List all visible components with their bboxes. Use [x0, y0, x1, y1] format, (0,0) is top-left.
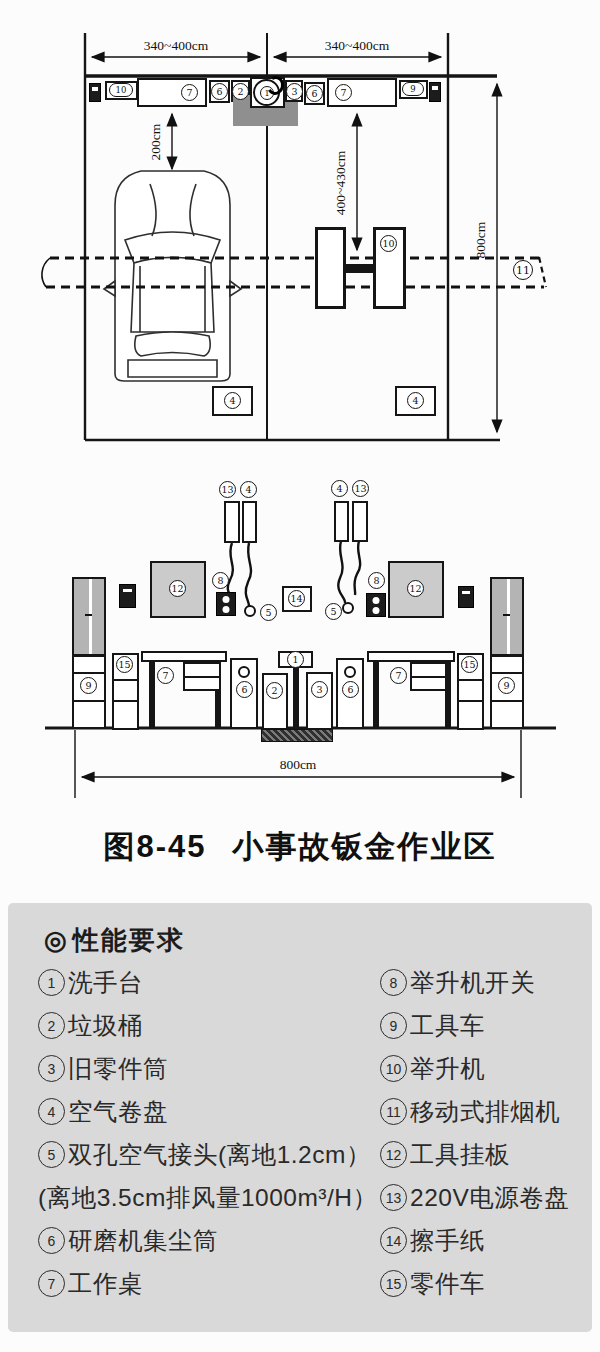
- callout-hang-4-left: 4: [240, 481, 257, 498]
- table-top-right: [367, 651, 455, 662]
- dust-collector-inlet: [238, 666, 250, 678]
- callout-hang-4-right: 4: [331, 480, 348, 497]
- table-shelf-left: [183, 662, 221, 691]
- item-text: 空气卷盘: [68, 1095, 168, 1128]
- panel-slot: [432, 86, 438, 90]
- callout-switch-8-left: 8: [212, 572, 229, 589]
- legend-heading-text: 性能要求: [73, 923, 185, 958]
- item-text: 工具挂板: [410, 1138, 510, 1171]
- callout-coupler-5-left: 5: [260, 604, 277, 621]
- legend-item-9: 9工具车: [380, 1009, 485, 1042]
- plan-linework: 340~400cm 340~400cm 800cm 200cm 400~430c…: [0, 0, 600, 470]
- wall-box-left: [119, 584, 136, 608]
- item-number: 1: [38, 969, 65, 996]
- table-shelf-right: [410, 662, 447, 691]
- item-number: 10: [380, 1055, 407, 1082]
- cart-shelf-line: [492, 672, 522, 674]
- power-reel-left: [224, 501, 240, 543]
- tall-cabinet-right: [490, 577, 524, 656]
- callout-floor-3: 3: [311, 681, 328, 698]
- item-number: 11: [380, 1098, 407, 1125]
- callout-wall-6-left: 6: [211, 83, 228, 100]
- cart-shelf-line: [114, 700, 137, 702]
- legend-item-10: 10举升机: [380, 1052, 485, 1085]
- item-text: 220V电源卷盘: [410, 1181, 569, 1214]
- callout-towel-14: 14: [288, 590, 305, 607]
- callout-board-12-left: 12: [169, 580, 186, 597]
- cart-shelf-line: [459, 679, 482, 681]
- car-top-view: [104, 171, 241, 381]
- callout-wall-10: 10: [109, 83, 133, 97]
- callout-floor-6-left: 6: [236, 681, 253, 698]
- callout-coupler-5-right: 5: [325, 603, 342, 620]
- item-number: 9: [380, 1012, 407, 1039]
- power-reel-right: [352, 501, 368, 542]
- legend-item-3: 3旧零件筒: [38, 1052, 168, 1085]
- cabinet-handle: [503, 614, 510, 617]
- item-number: 6: [38, 1227, 65, 1254]
- switch-button: [223, 596, 230, 603]
- panel-slot: [123, 589, 131, 593]
- wall-panel-left: [89, 83, 101, 102]
- legend-item-2: 2垃圾桶: [38, 1009, 143, 1042]
- item-text: 双孔空气接头(离地1.2cm）: [68, 1138, 371, 1171]
- callout-floor-7-right: 7: [390, 667, 407, 684]
- dim-depth: 800cm: [473, 221, 488, 258]
- callout-hang-13-right: 13: [352, 480, 369, 497]
- callout-wall-6-right: 6: [306, 85, 323, 102]
- item-number: 3: [38, 1055, 65, 1082]
- legend-item-11: 11移动式排烟机: [380, 1095, 560, 1128]
- lift-switch-right: [366, 593, 386, 617]
- figure-page: 340~400cm 340~400cm 800cm 200cm 400~430c…: [0, 0, 600, 1352]
- callout-wall-9: 9: [402, 82, 424, 96]
- cart-shelf-line: [492, 700, 522, 702]
- legend-item-8: 8举升机开关: [380, 966, 535, 999]
- callout-floor-1: 1: [287, 651, 304, 668]
- legend-heading: ◎ 性能要求: [44, 923, 185, 958]
- table-leg: [149, 662, 155, 728]
- item-text: 移动式排烟机: [410, 1095, 560, 1128]
- dim-bay-right: 340~400cm: [325, 38, 390, 53]
- cabinet-handle: [85, 614, 92, 617]
- item-text: (离地3.5cm排风量1000m³/H）: [38, 1181, 377, 1214]
- legend-item-15: 15零件车: [380, 1267, 485, 1300]
- callout-wall-7-right: 7: [335, 84, 352, 101]
- item-number: 8: [380, 969, 407, 996]
- callout-wall-7-left: 7: [181, 84, 198, 101]
- legend-item-13: 13220V电源卷盘: [380, 1181, 569, 1214]
- table-leg: [373, 662, 379, 728]
- item-text: 研磨机集尘筒: [68, 1224, 218, 1257]
- callout-floor-6-right: 6: [342, 681, 359, 698]
- item-text: 工具车: [410, 1009, 485, 1042]
- callout-board-12-right: 12: [407, 580, 424, 597]
- item-number: 15: [380, 1270, 407, 1297]
- callout-air-reel-right: 4: [407, 392, 424, 409]
- elevation-view: 800cm 9 15 7 6 2: [0, 470, 600, 810]
- switch-button: [373, 597, 380, 604]
- item-number: 4: [38, 1098, 65, 1125]
- basin-base-plate: [261, 729, 333, 742]
- legend-item-5b: (离地3.5cm排风量1000m³/H）: [38, 1181, 377, 1214]
- item-text: 工作桌: [68, 1267, 143, 1300]
- air-reel-hang-left: [242, 501, 257, 543]
- callout-switch-8-right: 8: [368, 572, 385, 589]
- callout-floor-15-left: 15: [116, 656, 133, 673]
- item-text: 洗手台: [68, 966, 143, 999]
- callout-air-reel-left: 4: [224, 392, 241, 409]
- item-number: 13: [380, 1184, 407, 1211]
- table-top-left: [141, 651, 227, 662]
- cabinet-door-gap: [507, 579, 510, 654]
- callout-floor-9-right: 9: [498, 677, 515, 694]
- plan-view: 340~400cm 340~400cm 800cm 200cm 400~430c…: [0, 0, 600, 470]
- air-reel-hang-right: [334, 501, 349, 542]
- lift-crossbar: [346, 264, 373, 273]
- cart-shelf-line: [74, 700, 104, 702]
- cart-shelf-line: [74, 672, 104, 674]
- legend-item-1: 1洗手台: [38, 966, 143, 999]
- item-number: 12: [380, 1141, 407, 1168]
- legend-item-6: 6研磨机集尘筒: [38, 1224, 218, 1257]
- bullet-icon: ◎: [44, 925, 69, 956]
- item-text: 旧零件筒: [68, 1052, 168, 1085]
- tall-cabinet-left: [72, 577, 106, 656]
- item-text: 举升机: [410, 1052, 485, 1085]
- cart-shelf-line: [114, 679, 137, 681]
- item-number: 5: [38, 1141, 65, 1168]
- dust-collector-inlet: [344, 666, 356, 678]
- lift-switch-left: [216, 592, 236, 616]
- dim-elevation-width: 800cm: [280, 757, 317, 772]
- cart-shelf-line: [459, 700, 482, 702]
- legend-item-12: 12工具挂板: [380, 1138, 510, 1171]
- figure-caption: 图8-45 小事故钣金作业区: [0, 826, 600, 868]
- item-text: 举升机开关: [410, 966, 535, 999]
- item-number: 7: [38, 1270, 65, 1297]
- item-number: 14: [380, 1227, 407, 1254]
- figure-title: 小事故钣金作业区: [233, 826, 497, 868]
- legend-item-5: 5双孔空气接头(离地1.2cm）: [38, 1138, 371, 1171]
- dim-wall-to-lift: 400~430cm: [333, 150, 348, 215]
- item-text: 擦手纸: [410, 1224, 485, 1257]
- wall-panel-right: [429, 82, 441, 102]
- lift-platform-left: [315, 227, 346, 309]
- legend-item-7: 7工作桌: [38, 1267, 143, 1300]
- switch-button: [223, 606, 230, 613]
- air-coupler-right: [342, 602, 354, 614]
- shelf-line: [185, 676, 219, 678]
- callout-hang-13-left: 13: [219, 481, 236, 498]
- callout-exhaust-11: 11: [513, 260, 533, 280]
- item-text: 垃圾桶: [68, 1009, 143, 1042]
- legend-item-4: 4空气卷盘: [38, 1095, 168, 1128]
- callout-wall-2: 2: [232, 83, 249, 100]
- switch-button: [373, 607, 380, 614]
- cabinet-door-gap: [89, 579, 92, 654]
- callout-floor-2: 2: [266, 682, 283, 699]
- callout-wall-3: 3: [286, 83, 303, 100]
- item-number: 2: [38, 1012, 65, 1039]
- basin-pedestal: [293, 668, 299, 729]
- wall-box-right: [458, 586, 474, 608]
- air-coupler-left: [244, 605, 256, 617]
- item-text: 零件车: [410, 1267, 485, 1300]
- callout-floor-7-left: 7: [157, 667, 174, 684]
- panel-slot: [462, 591, 470, 595]
- panel-slot: [92, 87, 98, 91]
- dim-wall-to-car: 200cm: [148, 123, 163, 160]
- callout-floor-9-left: 9: [80, 677, 97, 694]
- legend-panel: ◎ 性能要求 1洗手台 2垃圾桶 3旧零件筒 4空气卷盘 5双孔空气接头(离地1…: [8, 903, 592, 1332]
- dim-bay-left: 340~400cm: [144, 38, 209, 53]
- legend-item-14: 14擦手纸: [380, 1224, 485, 1257]
- shelf-line: [412, 676, 445, 678]
- callout-lift-10: 10: [380, 235, 397, 252]
- figure-number: 图8-45: [103, 826, 206, 868]
- callout-floor-15-right: 15: [461, 656, 478, 673]
